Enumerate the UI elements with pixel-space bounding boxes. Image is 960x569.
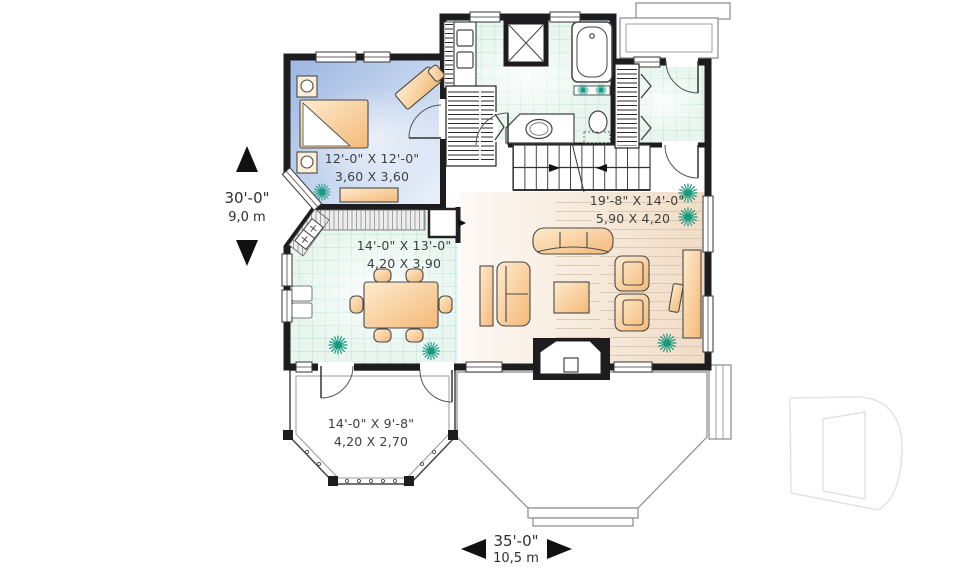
plant-icon	[679, 208, 697, 226]
overall-width-dimension: 35'-0" 10,5 m	[461, 532, 572, 566]
bathtub	[572, 22, 612, 82]
nightstand	[297, 152, 317, 173]
arrow-right-icon	[547, 539, 572, 559]
linen-shelves	[444, 22, 454, 88]
bookcase	[480, 266, 493, 326]
floor-plan-page: 12'-0" X 12'-0" 3,60 X 3,60 14'-0" X 13'…	[0, 0, 960, 569]
bedroom-dims-ft: 12'-0" X 12'-0"	[325, 151, 420, 166]
nightstand	[297, 76, 317, 97]
depth-m-label: 9,0 m	[228, 210, 265, 225]
bathroom-window	[550, 12, 580, 22]
dining-chair	[406, 329, 423, 342]
dining-chair	[350, 296, 363, 313]
plant-icon	[658, 334, 676, 352]
top-deck	[620, 3, 730, 58]
dining-dims-ft: 14'-0" X 13'-0"	[357, 238, 452, 253]
bedroom-window	[364, 52, 390, 62]
plant-icon	[422, 342, 439, 359]
floor-plan-canvas: 12'-0" X 12'-0" 3,60 X 3,60 14'-0" X 13'…	[0, 0, 960, 569]
bed	[300, 100, 368, 148]
living-window	[703, 196, 713, 252]
plant-icon	[314, 184, 330, 200]
kitchen-window	[296, 362, 312, 372]
veranda-dims-m: 4,20 X 2,70	[334, 434, 408, 449]
laundry-counter	[454, 22, 476, 88]
dining-dims-m: 4,20 X 3,90	[367, 256, 441, 271]
dining-chair	[439, 296, 452, 313]
loveseat	[497, 262, 530, 326]
sofa	[533, 228, 613, 254]
living-dims-m: 5,90 X 4,20	[596, 211, 670, 226]
deck-side-steps	[709, 365, 731, 439]
bathroom-window	[470, 12, 500, 22]
living-dims-ft: 19'-8" X 14'-0"	[590, 193, 685, 208]
kitchen-window	[282, 290, 292, 322]
width-m-label: 10,5 m	[493, 551, 539, 566]
depth-ft-label: 30'-0"	[224, 189, 269, 207]
kitchen-window	[282, 254, 292, 286]
plant-icon	[329, 336, 347, 354]
arrow-left-icon	[461, 539, 486, 559]
entry-living-door	[665, 145, 698, 178]
rear-deck	[457, 365, 731, 526]
arrow-up-icon	[236, 146, 258, 172]
vanity-sink	[506, 114, 574, 143]
staircase	[513, 143, 650, 192]
deck-steps	[528, 508, 638, 518]
plant-icon	[578, 85, 589, 96]
dining-chair	[374, 329, 391, 342]
dresser	[340, 188, 398, 202]
living-window	[614, 362, 652, 372]
dining-table	[364, 282, 438, 328]
armchair	[615, 256, 649, 291]
bedroom-closet	[446, 86, 504, 166]
bedroom-dims-m: 3,60 X 3,60	[335, 169, 409, 184]
overall-depth-dimension: 30'-0" 9,0 m	[224, 146, 269, 266]
coffee-table	[554, 282, 589, 313]
armchair	[615, 294, 649, 331]
living-window	[703, 296, 713, 352]
fireplace	[533, 338, 610, 380]
veranda-dims-ft: 14'-0" X 9'-8"	[328, 416, 414, 431]
arrow-down-icon	[236, 240, 258, 266]
plant-icon	[596, 85, 607, 96]
drummond-d-logo	[790, 397, 902, 510]
shower-stall	[506, 22, 546, 64]
bedroom-window	[316, 52, 356, 62]
width-ft-label: 35'-0"	[493, 532, 538, 550]
living-window	[466, 362, 502, 372]
